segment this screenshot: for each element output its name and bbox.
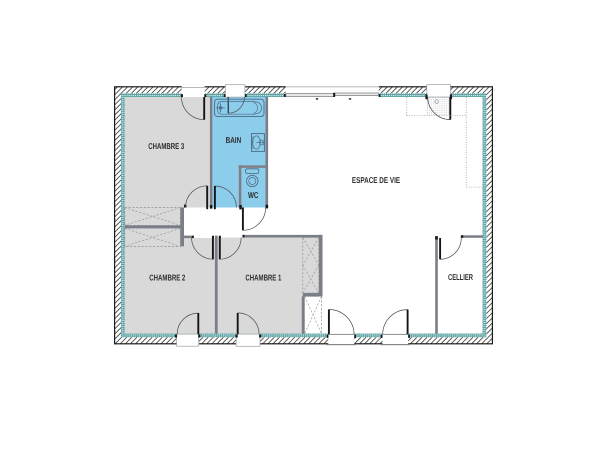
- svg-text:CHAMBRE 2: CHAMBRE 2: [149, 272, 185, 282]
- svg-text:CHAMBRE 1: CHAMBRE 1: [245, 272, 281, 282]
- svg-text:CHAMBRE 3: CHAMBRE 3: [148, 141, 184, 151]
- svg-text:BAIN: BAIN: [226, 135, 242, 145]
- svg-text:ESPACE DE VIE: ESPACE DE VIE: [352, 175, 401, 185]
- svg-text:CELLIER: CELLIER: [448, 272, 473, 282]
- svg-text:WC: WC: [248, 190, 259, 200]
